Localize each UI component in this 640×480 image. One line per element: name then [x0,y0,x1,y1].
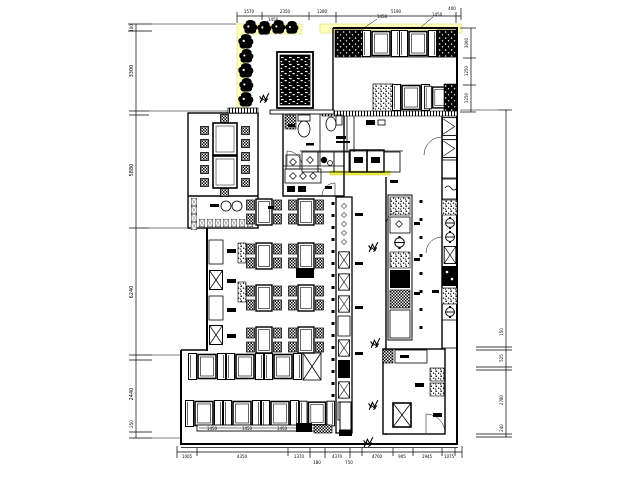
toilet-icon [326,117,336,131]
tree-icon [271,20,285,34]
booth [247,243,282,269]
dim-label: 400 [448,6,456,11]
tree-icon [285,21,298,34]
wall-tables-left [209,240,236,345]
dim-sublabel: 750 [345,460,353,465]
booth [247,327,282,353]
dim-label: 400 [129,24,134,32]
dim-label: 6240 [129,286,135,299]
dim-label: 4700 [372,454,383,459]
burner [445,231,455,243]
room-bottom-right [383,349,445,434]
dim-label: 4350 [237,454,248,459]
dim-label: 4370 [332,454,343,459]
stool [221,201,231,211]
dim-label: 1250 [464,92,469,103]
booth [247,285,282,311]
dim-label: 2780 [499,394,504,405]
booth [186,401,223,427]
bench-label: 1450 [277,426,288,431]
stool [232,201,242,211]
dim-label: 150 [499,328,504,336]
planter-box [238,243,246,263]
dim-label: 525 [499,354,504,362]
booth [289,327,324,353]
door-swing [424,137,442,155]
dining-bottom [186,353,353,436]
booth [189,354,226,380]
service-wall-right [442,118,457,348]
chair [221,115,229,123]
booth [289,243,324,269]
leader-label: 1450 [432,12,443,17]
dim-label: 1250 [464,65,469,76]
floor-plan-drawing: 1570 2350 1280 5190 400 1450 1450 1450 4… [0,0,640,480]
dimension-right-outer: 150 525 2780 240 [460,110,512,437]
bench-label: 1450 [242,426,253,431]
booth [289,285,324,311]
fridge [442,118,456,136]
dim-sublabel: 180 [313,460,321,465]
planter-box [444,84,456,111]
toilet-icon [298,121,310,137]
dim-label: 2350 [280,9,291,14]
burner [445,306,455,318]
chair [221,189,229,197]
dim-label: 1945 [422,454,433,459]
dim-label: 240 [499,424,504,432]
leader-label: 1450 [377,14,388,19]
chair [201,179,209,187]
chair [242,166,250,174]
table [213,123,237,155]
lounge [191,198,252,230]
chair [201,140,209,148]
chair [201,153,209,161]
dim-label: 1280 [317,9,328,14]
stone-feature [277,52,313,108]
chair [201,127,209,135]
planter-box [238,282,246,302]
door-swing [322,183,335,196]
booth [363,31,400,57]
burner [445,217,455,229]
dim-label: 2440 [129,388,135,401]
chair [242,179,250,187]
booth [247,199,282,225]
figure-icon [369,400,378,410]
planter-box [335,30,363,57]
door-swing [426,237,442,253]
dim-label: 3300 [129,65,135,78]
dim-label: 250 [129,420,134,428]
dim-label: 905 [398,454,406,459]
dining-top-right [335,30,457,111]
dim-label: 1005 [182,454,193,459]
figure-icon [369,242,378,252]
figure-icon [364,437,373,447]
dim-label: 3060 [464,37,469,48]
booth [262,401,299,427]
chair [242,140,250,148]
dimension-right-inner: 3060 1250 1250 [460,28,476,112]
booth [265,354,302,380]
dim-label: 5190 [391,9,402,14]
bench-label: 1450 [207,426,218,431]
partition-strip [333,197,352,433]
column [296,268,314,278]
dimension-bottom: 1005 4350 1370 4370 4700 905 1945 1075 1… [177,446,462,465]
leader-label: 1450 [268,17,279,22]
booth [400,31,437,57]
booth [299,401,334,426]
planter-box [437,30,456,57]
column [296,423,312,432]
restrooms [285,115,342,196]
booth [393,85,430,111]
figure-icon [260,93,269,103]
dim-label: 1570 [244,9,255,14]
planter-box [373,84,393,111]
cad-floor-plan-canvas: 1570 2350 1280 5190 400 1450 1450 1450 4… [0,0,640,480]
dim-label: 1370 [294,454,305,459]
dim-label: 5880 [129,164,135,177]
booth [227,354,264,380]
chair [201,166,209,174]
chair [242,153,250,161]
booth [289,199,324,225]
booth [224,401,261,427]
private-room [201,115,250,197]
tree-icon [243,20,257,34]
kitchen [386,137,442,340]
fridge [442,140,456,158]
figure-icon [371,338,380,348]
dim-label: 1075 [444,454,455,459]
door-leaf [340,402,351,430]
chair [242,127,250,135]
table [213,156,237,188]
